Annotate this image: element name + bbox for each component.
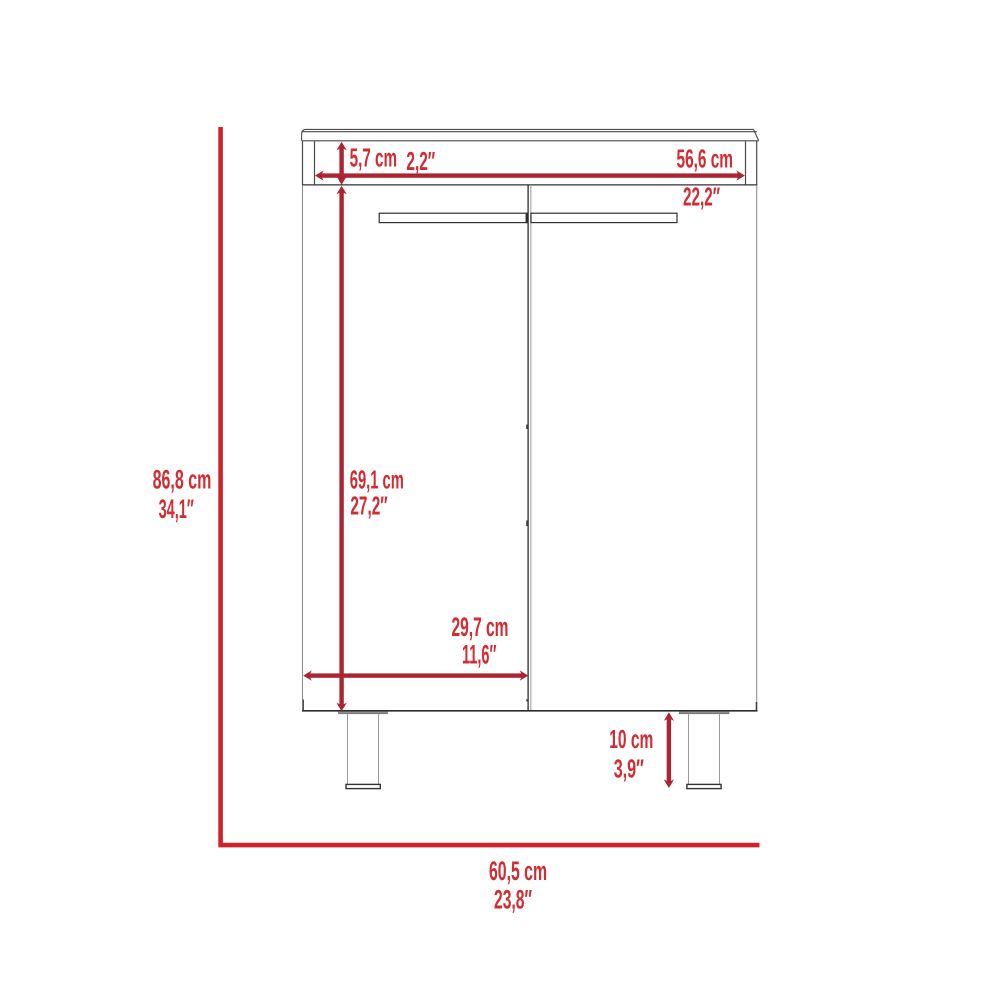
svg-text:5,7 cm: 5,7 cm xyxy=(350,142,398,172)
svg-text:22,2″: 22,2″ xyxy=(683,182,720,212)
svg-text:34,1″: 34,1″ xyxy=(159,494,194,524)
svg-text:10 cm: 10 cm xyxy=(609,724,653,754)
svg-text:11,6″: 11,6″ xyxy=(462,639,497,669)
svg-text:2,2″: 2,2″ xyxy=(406,146,435,176)
svg-text:23,8″: 23,8″ xyxy=(494,885,532,915)
svg-text:56,6 cm: 56,6 cm xyxy=(677,144,734,174)
svg-text:60,5 cm: 60,5 cm xyxy=(489,856,547,886)
svg-text:27,2″: 27,2″ xyxy=(350,491,387,521)
svg-text:86,8 cm: 86,8 cm xyxy=(153,465,212,495)
svg-text:29,7 cm: 29,7 cm xyxy=(452,612,509,642)
svg-text:3,9″: 3,9″ xyxy=(614,753,644,783)
